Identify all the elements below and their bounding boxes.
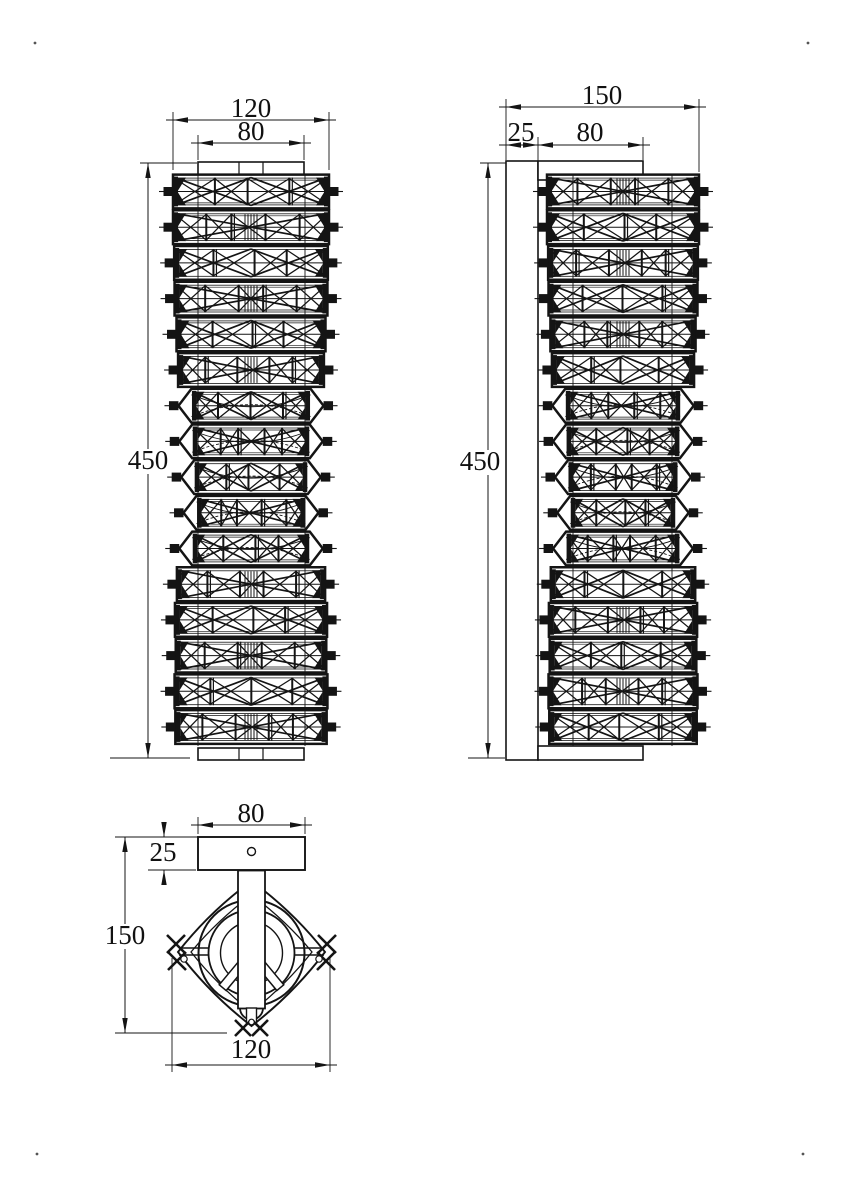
front-lamp-body	[159, 162, 343, 760]
bottom-view: 8025150120	[102, 798, 337, 1072]
crystal-band	[164, 389, 337, 423]
dimension-label: 150	[105, 920, 146, 950]
technical-drawing: 12080450 1502580450 8025150120	[0, 0, 848, 1200]
crystal-band	[161, 603, 341, 637]
dimension-label: 25	[150, 837, 177, 867]
crystal-band	[539, 425, 707, 459]
crystal-band	[161, 282, 342, 316]
front-view: 12080450	[110, 93, 343, 760]
dimension-label: 120	[231, 1034, 272, 1064]
crystal-band	[536, 639, 711, 673]
dimension-label: 80	[238, 798, 265, 828]
crystal-band	[163, 317, 340, 351]
dimension-label: 450	[128, 445, 169, 475]
crystal-band	[167, 460, 335, 494]
crystal-band	[164, 353, 338, 387]
crystal-band	[541, 460, 705, 494]
drawing-page: 12080450 1502580450 8025150120	[0, 0, 848, 1200]
registration-dot	[802, 1153, 805, 1156]
dimension-label: 80	[238, 116, 265, 146]
crystal-band	[537, 567, 709, 601]
dimension-label: 25	[508, 117, 535, 147]
crystal-band	[535, 603, 711, 637]
crystal-band	[165, 532, 337, 566]
crystal-band	[535, 674, 712, 708]
bottom-lamp-body	[167, 837, 336, 1036]
side-view: 1502580450	[457, 80, 713, 760]
crystal-band	[538, 353, 708, 387]
registration-dot	[807, 42, 810, 45]
crystal-band	[159, 175, 343, 209]
dimension-label: 150	[582, 80, 623, 110]
crystal-band	[161, 710, 340, 744]
crystal-band	[170, 496, 333, 530]
crystal-band	[539, 532, 707, 566]
crystal-band	[533, 210, 713, 244]
dimension-label: 80	[577, 117, 604, 147]
registration-dot	[36, 1153, 39, 1156]
registration-dot	[34, 42, 37, 45]
crystal-band	[536, 317, 709, 351]
dimension-label: 450	[460, 446, 501, 476]
crystal-band	[161, 674, 342, 708]
crystal-band	[534, 246, 712, 280]
crystal-band	[160, 246, 342, 280]
crystal-band	[163, 567, 339, 601]
crystal-band	[538, 389, 707, 423]
side-lamp-body	[506, 161, 713, 760]
crystal-band	[535, 710, 710, 744]
crystal-band	[543, 496, 702, 530]
crystal-band	[162, 639, 341, 673]
crystal-band	[165, 425, 337, 459]
crystal-band	[159, 210, 343, 244]
crystal-band	[533, 175, 713, 209]
crystal-band	[535, 282, 712, 316]
